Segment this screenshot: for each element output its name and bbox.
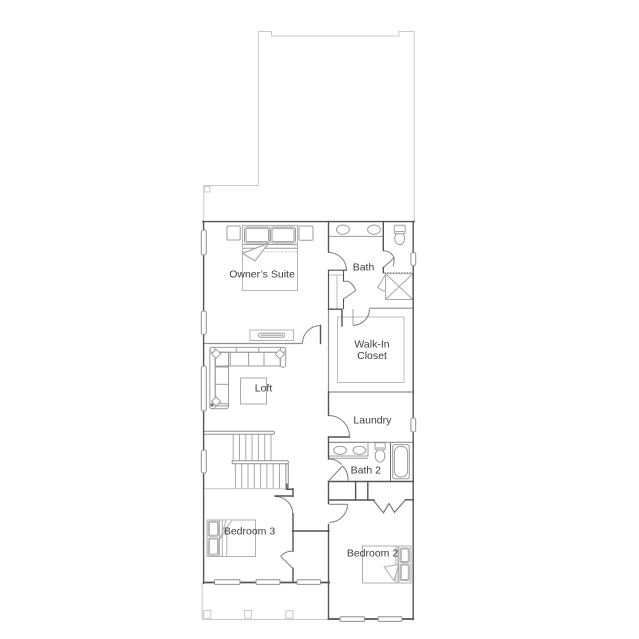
svg-text:Bedroom 2: Bedroom 2 xyxy=(347,547,399,559)
svg-text:Walk-In: Walk-In xyxy=(354,338,389,350)
svg-text:Loft: Loft xyxy=(255,382,273,394)
svg-text:Closet: Closet xyxy=(357,350,387,362)
svg-text:Bath 2: Bath 2 xyxy=(351,465,382,477)
svg-text:Laundry: Laundry xyxy=(353,415,392,427)
svg-text:Bedroom 3: Bedroom 3 xyxy=(224,525,276,537)
svg-text:Bath: Bath xyxy=(353,261,375,273)
svg-text:Owner’s Suite: Owner’s Suite xyxy=(229,268,295,280)
